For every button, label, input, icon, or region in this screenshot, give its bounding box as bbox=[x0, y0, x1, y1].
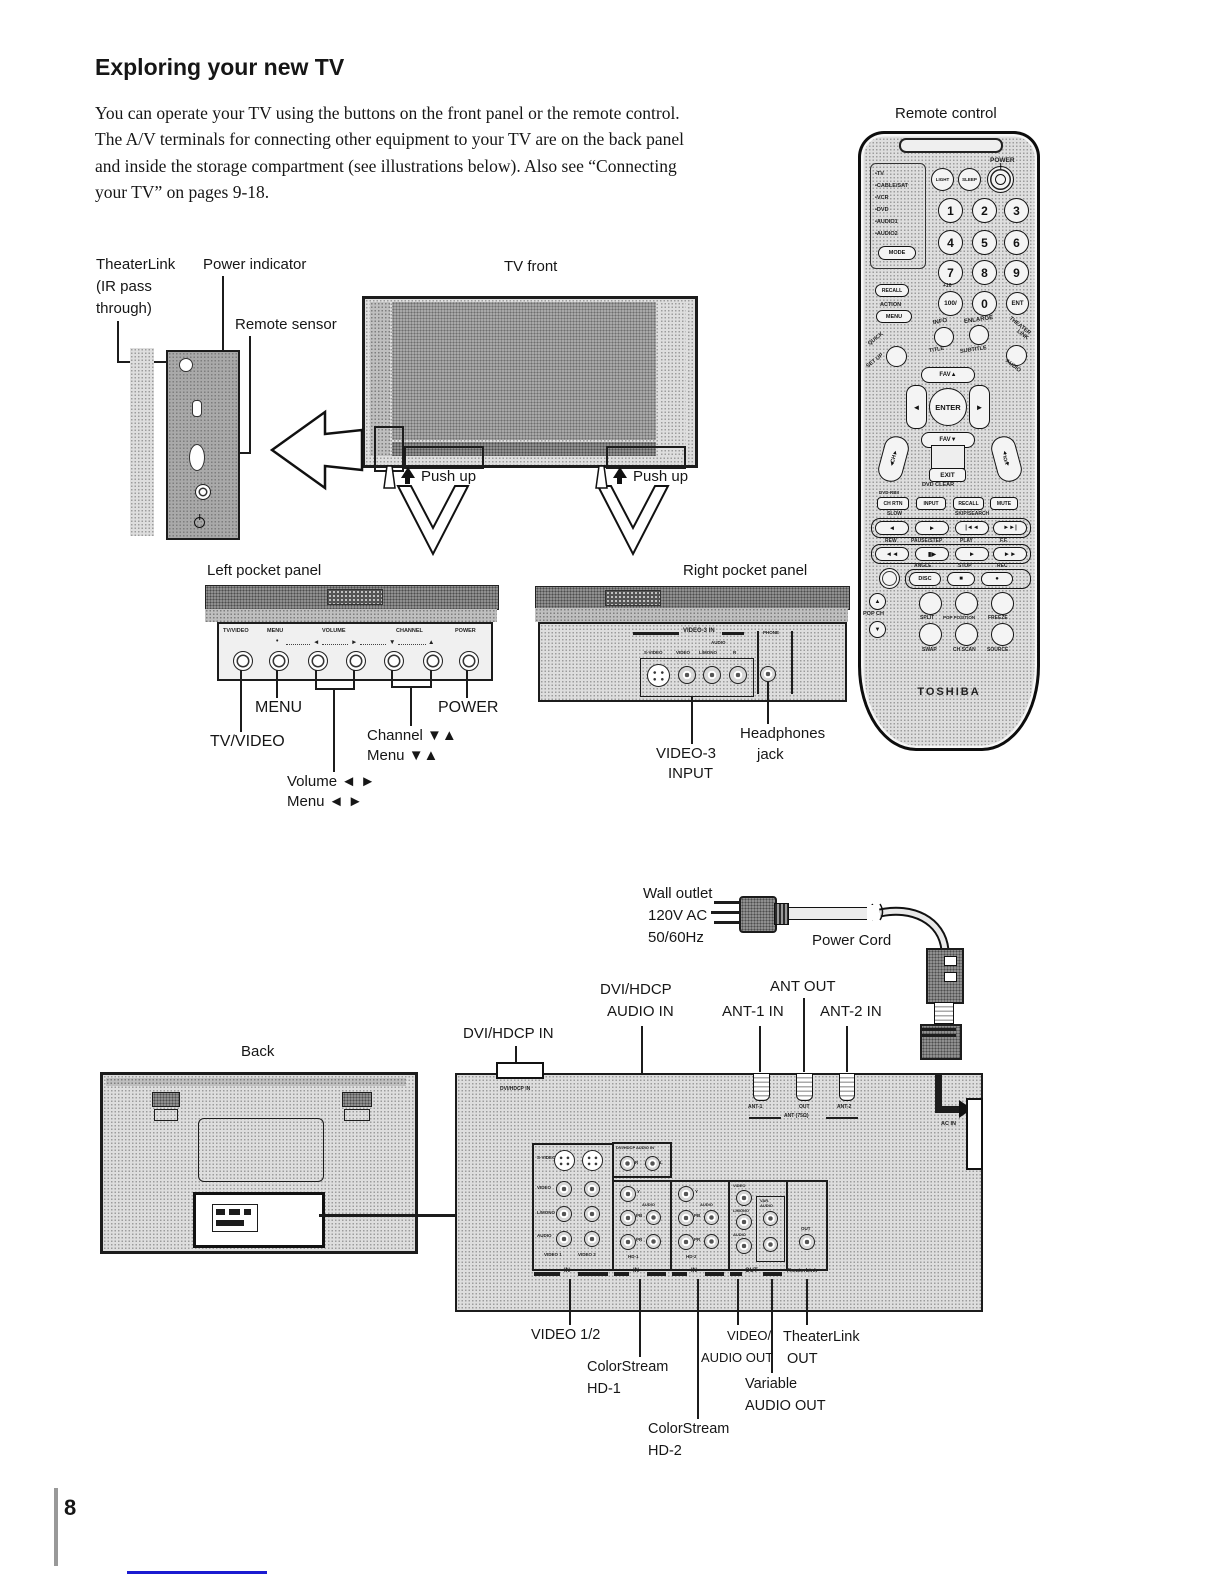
video3-input-callout-2: INPUT bbox=[668, 766, 713, 783]
push-up-arrow-stem bbox=[405, 477, 410, 484]
menu-callout: MENU bbox=[255, 699, 302, 717]
hd1-tag: HD-1 bbox=[628, 1254, 639, 1259]
enter-button: ENTER bbox=[929, 388, 967, 426]
action-label: ACTION bbox=[880, 302, 901, 308]
phone-label: PHONE bbox=[763, 630, 779, 635]
var-audio-r-jack bbox=[763, 1237, 778, 1252]
cord-break-gap bbox=[867, 905, 877, 920]
jack-label-l-mono: L/MONO bbox=[699, 650, 717, 655]
y-label: Y bbox=[637, 1189, 640, 1194]
callout-line bbox=[391, 670, 393, 686]
recall-transport-button: RECALL bbox=[953, 497, 984, 510]
callout-line bbox=[737, 1279, 739, 1325]
digit-4-button: 4 bbox=[938, 230, 963, 255]
input-button: INPUT bbox=[916, 497, 946, 510]
callout-line bbox=[846, 1026, 848, 1072]
s-video-jack bbox=[554, 1150, 575, 1171]
video12-group: S-VIDEO VIDEO L/MONO AUDIO VIDEO 1 VIDEO… bbox=[532, 1143, 614, 1271]
tv-left-cover-outline bbox=[404, 446, 484, 469]
recall-button: RECALL bbox=[875, 284, 909, 297]
audio-r-jack bbox=[584, 1231, 600, 1247]
split-label: SPLIT bbox=[920, 615, 934, 621]
enlarge-label: ENLARGE bbox=[964, 315, 994, 325]
callout-line bbox=[315, 670, 317, 688]
down-chevron-icon bbox=[598, 486, 668, 554]
dvi-audio-in-box: DVI/HDCP AUDIO IN R L bbox=[612, 1142, 672, 1178]
ant2-connector bbox=[839, 1073, 855, 1101]
digit-0-button: 0 bbox=[972, 291, 997, 316]
r-label: R bbox=[635, 1160, 638, 1165]
back-panel-vent bbox=[152, 1092, 180, 1107]
video-jack bbox=[584, 1181, 600, 1197]
pop-position-label: POP POSITION bbox=[943, 615, 975, 620]
pop-ch-label: POP CH bbox=[863, 611, 884, 617]
inset-link-line bbox=[319, 1214, 457, 1217]
callout-line bbox=[249, 336, 251, 454]
mode-item-audio2: •AUDIO2 bbox=[875, 231, 898, 237]
volume-left-glyph: ◄ bbox=[313, 639, 319, 646]
headphone-jack bbox=[760, 666, 776, 682]
mute-button: MUTE bbox=[990, 497, 1018, 510]
plug-block-stripe bbox=[922, 1028, 956, 1031]
digit-1-button: 1 bbox=[938, 198, 963, 223]
video3-group-label: VIDEO-3 IN bbox=[683, 628, 715, 634]
right-pocket-display bbox=[605, 590, 661, 606]
var-audio-l-jack bbox=[763, 1211, 778, 1226]
plug-body bbox=[739, 896, 777, 933]
tl-callout-2: OUT bbox=[787, 1351, 818, 1367]
callout-line bbox=[430, 670, 432, 686]
plug-collar bbox=[774, 903, 789, 925]
audio-out-r-jack bbox=[736, 1238, 752, 1254]
ant1-in-label: ANT-1 IN bbox=[722, 1004, 784, 1021]
menu-button bbox=[269, 651, 289, 671]
inset-connector-glyph bbox=[244, 1209, 251, 1215]
callout-line bbox=[353, 670, 355, 688]
slow-back-button: ◄ bbox=[875, 521, 909, 535]
digit-3-button: 3 bbox=[1004, 198, 1029, 223]
source-button bbox=[991, 623, 1014, 646]
audio-out-l-jack bbox=[736, 1214, 752, 1230]
quick-setup-button bbox=[886, 346, 907, 367]
panel-label-volume: VOLUME bbox=[322, 628, 346, 634]
ant2-in-label: ANT-2 IN bbox=[820, 1004, 882, 1021]
panel-label-menu: MENU bbox=[267, 628, 283, 634]
video3-bracket-bar bbox=[722, 632, 744, 635]
push-up-label-right: Push up bbox=[633, 469, 688, 486]
skip-search-label: SKIP/SEARCH bbox=[955, 511, 989, 517]
digit-2-button: 2 bbox=[972, 198, 997, 223]
ant-bracket-label: ANT (75Ω) bbox=[784, 1113, 809, 1119]
tl-out-label: OUT bbox=[801, 1226, 811, 1231]
bracket-in-1: IN bbox=[564, 1268, 570, 1274]
g1-col-video1: VIDEO 1 bbox=[544, 1252, 562, 1257]
title-label: TITLE bbox=[929, 346, 945, 355]
nav-left-button: ◄ bbox=[906, 385, 927, 429]
jack-label-s-video: S-VIDEO bbox=[644, 650, 663, 655]
bracket-in-2: IN bbox=[633, 1268, 639, 1274]
power-button-label: POWER bbox=[990, 157, 1015, 164]
callout-line bbox=[691, 696, 693, 744]
mode-item-dvd: •DVD bbox=[875, 207, 889, 213]
tl-callout-1: TheaterLink bbox=[783, 1329, 860, 1345]
down-chevron-icon bbox=[398, 486, 468, 554]
callout-line bbox=[759, 1026, 761, 1072]
dvi-audio-r-jack bbox=[620, 1156, 635, 1171]
mode-item-audio1: •AUDIO1 bbox=[875, 219, 898, 225]
panel-dotted-line bbox=[286, 644, 310, 645]
audio-l-jack bbox=[556, 1206, 572, 1222]
video-jack bbox=[556, 1181, 572, 1197]
bracket-bar bbox=[647, 1272, 666, 1276]
right-pocket-mid-band bbox=[535, 608, 848, 622]
panel-label-tv-video: TV/VIDEO bbox=[223, 628, 249, 634]
ac-in-label: AC IN bbox=[941, 1121, 956, 1127]
bracket-bar bbox=[705, 1272, 724, 1276]
left-pocket-display bbox=[327, 589, 383, 605]
connector-slot bbox=[944, 972, 957, 982]
tv-side-pocket-outline bbox=[374, 426, 404, 472]
exit-button-frame bbox=[931, 445, 965, 469]
callout-line bbox=[466, 670, 468, 698]
page-title: Exploring your new TV bbox=[95, 55, 344, 81]
menu-dot-glyph: • bbox=[276, 638, 278, 645]
bracket-in-3: IN bbox=[691, 1268, 697, 1274]
plug-prong bbox=[714, 921, 739, 924]
rew-button: ◄◄ bbox=[875, 547, 909, 561]
volume-right-button bbox=[346, 651, 366, 671]
ant1-connector bbox=[753, 1073, 770, 1101]
tv-right-speaker bbox=[660, 302, 686, 456]
dvi-port bbox=[496, 1062, 544, 1079]
plug-block-stripe bbox=[922, 1034, 956, 1037]
subtitle-label: SUBTITLE bbox=[960, 345, 987, 355]
power-symbol-icon bbox=[995, 174, 1006, 185]
ac-in-socket bbox=[966, 1098, 983, 1170]
volume-callout: Volume ◄ ► bbox=[287, 774, 375, 791]
theaterlink-out-jack bbox=[799, 1234, 815, 1250]
ff-button: ►► bbox=[993, 547, 1027, 561]
video-out-jack bbox=[736, 1190, 752, 1206]
skip-fwd-button: ►►| bbox=[993, 521, 1027, 535]
slow-fwd-button: ► bbox=[915, 521, 949, 535]
theaterlink-group: OUT bbox=[786, 1180, 828, 1271]
tv-screen bbox=[392, 302, 656, 440]
bracket-bar bbox=[730, 1272, 742, 1276]
phone-bracket bbox=[791, 631, 793, 694]
callout-line bbox=[515, 1046, 517, 1062]
right-pocket-title: Right pocket panel bbox=[683, 563, 807, 580]
digit-6-button: 6 bbox=[1004, 230, 1029, 255]
volume-rocker: ▲VOL▼ bbox=[988, 434, 1024, 485]
audio-l-jack bbox=[704, 1210, 719, 1225]
audio-r-jack bbox=[556, 1231, 572, 1247]
var-audio-subgroup: VAR. AUDIO bbox=[756, 1196, 785, 1262]
cs1-callout-2: HD-1 bbox=[587, 1381, 621, 1397]
pr-jack bbox=[620, 1234, 636, 1250]
ant-out-label: ANT OUT bbox=[770, 979, 836, 996]
video-jack bbox=[678, 666, 696, 684]
remote-power-button bbox=[987, 166, 1014, 193]
g1-row-s-video: S-VIDEO bbox=[537, 1155, 556, 1160]
channel-menu-callout: Menu ▼▲ bbox=[367, 748, 438, 765]
audio-bracket-label: AUDIO bbox=[711, 640, 726, 645]
out-audio-label: AUDIO bbox=[733, 1232, 746, 1237]
channel-down-button bbox=[384, 651, 404, 671]
ch-scan-label: CH SCAN bbox=[953, 647, 976, 653]
audio-l-jack bbox=[584, 1206, 600, 1222]
swap-button bbox=[919, 623, 942, 646]
power-cord-segment bbox=[788, 907, 868, 920]
audio-l-jack bbox=[646, 1210, 661, 1225]
y-jack bbox=[678, 1186, 694, 1202]
diagram-arrows-layer bbox=[0, 0, 1224, 1584]
audio-small-label: AUDIO bbox=[642, 1202, 655, 1207]
connector-slot bbox=[944, 956, 957, 966]
ant-out-small-label: OUT bbox=[799, 1104, 810, 1110]
channel-up-glyph: ▲ bbox=[428, 639, 434, 646]
g1-row-l-mono: L/MONO bbox=[537, 1210, 555, 1215]
wall-outlet-label-1: Wall outlet bbox=[643, 886, 712, 903]
light-button: LIGHT bbox=[931, 168, 954, 191]
back-panel-vent bbox=[342, 1092, 372, 1107]
cord-connector-neck bbox=[934, 1002, 954, 1024]
tv-side-strip bbox=[130, 348, 154, 536]
volume-left-button bbox=[308, 651, 328, 671]
mode-item-vcr: •VCR bbox=[875, 195, 889, 201]
tv-side-panel bbox=[166, 350, 240, 540]
bracket-bar bbox=[578, 1272, 608, 1276]
bracket-bar bbox=[614, 1272, 629, 1276]
colorstream-hd2-group: Y AUDIO PB PR HD-2 bbox=[670, 1180, 730, 1271]
mode-item-tv: •TV bbox=[875, 171, 884, 177]
pb-label: PB bbox=[694, 1213, 700, 1218]
swap-label: SWAP bbox=[922, 647, 937, 653]
callout-line bbox=[117, 321, 119, 363]
side-power-button bbox=[195, 484, 211, 500]
freeze-label: FREEZE bbox=[988, 615, 1008, 621]
g1-col-video2: VIDEO 2 bbox=[578, 1252, 596, 1257]
digit-5-button: 5 bbox=[972, 230, 997, 255]
split-button bbox=[919, 592, 942, 615]
video12-callout: VIDEO 1/2 bbox=[531, 1327, 600, 1343]
audio-r-jack bbox=[704, 1234, 719, 1249]
tv-video-button bbox=[233, 651, 253, 671]
channel-up-button bbox=[423, 651, 443, 671]
y-jack bbox=[620, 1186, 636, 1202]
channel-callout: Channel ▼▲ bbox=[367, 728, 457, 745]
dvi-audio-label-2: AUDIO IN bbox=[607, 1004, 674, 1021]
left-pocket-mid-band bbox=[205, 609, 497, 622]
audio-r-jack bbox=[646, 1234, 661, 1249]
dvd-rbii-label: DVD-RBII bbox=[879, 490, 899, 495]
power-indicator bbox=[192, 400, 202, 417]
disc-button: DISC bbox=[909, 572, 941, 586]
back-label: Back bbox=[241, 1044, 274, 1061]
pop-position-button bbox=[955, 592, 978, 615]
headphones-callout-2: jack bbox=[757, 747, 784, 764]
cs2-callout-2: HD-2 bbox=[648, 1443, 682, 1459]
sleep-button: SLEEP bbox=[958, 168, 981, 191]
var-label-2: AUDIO bbox=[760, 1203, 773, 1208]
panel-label-power: POWER bbox=[455, 628, 476, 634]
back-panel-center-plate bbox=[198, 1118, 324, 1182]
pb-label: PB bbox=[636, 1213, 642, 1218]
inset-connector-glyph bbox=[216, 1209, 225, 1215]
dvi-port-label: DVI/HDCP IN bbox=[500, 1086, 530, 1092]
wall-outlet-label-3: 50/60Hz bbox=[648, 930, 704, 947]
remote-body: •TV •CABLE/SAT •VCR •DVD •AUDIO1 •AUDIO2… bbox=[858, 131, 1040, 751]
info-title-button bbox=[934, 327, 954, 347]
phone-bracket bbox=[757, 631, 759, 694]
theaterlink-label-3: through) bbox=[96, 301, 152, 318]
out-video-label: VIDEO bbox=[733, 1183, 745, 1188]
ant-bracket-bar bbox=[826, 1117, 858, 1119]
audio-r-jack bbox=[729, 666, 747, 684]
mode-list-box: •TV •CABLE/SAT •VCR •DVD •AUDIO1 •AUDIO2… bbox=[870, 163, 926, 269]
bracket-bar bbox=[763, 1272, 782, 1276]
callout-line bbox=[333, 688, 335, 772]
digit-9-button: 9 bbox=[1004, 260, 1029, 285]
dvi-audio-l-jack bbox=[645, 1156, 660, 1171]
callout-line bbox=[639, 1279, 641, 1357]
callout-line bbox=[410, 686, 412, 726]
av-out-group: VIDEO L/MONO AUDIO VAR. AUDIO bbox=[728, 1180, 788, 1271]
footer-link-line[interactable] bbox=[127, 1571, 267, 1574]
freeze-button bbox=[991, 592, 1014, 615]
var-callout-1: Variable bbox=[745, 1376, 797, 1392]
callout-line bbox=[767, 682, 769, 724]
y-label: Y bbox=[695, 1189, 698, 1194]
callout-line bbox=[276, 670, 278, 698]
out-l-mono-label: L/MONO bbox=[733, 1208, 749, 1213]
volume-rocker-label: VOL bbox=[1002, 453, 1010, 464]
remote-sensor bbox=[189, 444, 205, 471]
bracket-bar bbox=[534, 1272, 560, 1276]
remote-brand: TOSHIBA bbox=[861, 686, 1037, 698]
bracket-bar bbox=[672, 1272, 687, 1276]
ent-button: ENT bbox=[1006, 292, 1029, 315]
setup-label: SET UP bbox=[865, 353, 884, 370]
intro-paragraph: You can operate your TV using the button… bbox=[95, 100, 695, 205]
ch-rtn-button: CH RTN bbox=[877, 497, 909, 510]
var-callout-2: AUDIO OUT bbox=[745, 1398, 826, 1414]
inset-connector-glyph bbox=[229, 1209, 240, 1215]
power-callout: POWER bbox=[438, 699, 498, 717]
plug-prong bbox=[714, 901, 739, 904]
digit-8-button: 8 bbox=[972, 260, 997, 285]
colorstream-hd1-group: Y AUDIO PB PR HD-1 bbox=[612, 1180, 672, 1271]
remote-control-title: Remote control bbox=[895, 106, 997, 123]
action-menu-button: MENU bbox=[876, 310, 912, 323]
callout-line bbox=[569, 1279, 571, 1325]
ac-in-arrow bbox=[935, 1106, 959, 1113]
big-left-arrow-icon bbox=[272, 412, 362, 488]
audio-l-jack bbox=[703, 666, 721, 684]
dvd-clear-label: DVD CLEAR bbox=[922, 482, 954, 488]
ant2-small-label: ANT-2 bbox=[837, 1104, 851, 1110]
cover-tab-icon bbox=[596, 466, 607, 488]
theaterlink-emitter bbox=[179, 358, 193, 372]
fav-up-button: FAV▲ bbox=[921, 367, 975, 383]
slow-label: SLOW bbox=[887, 511, 902, 517]
ant-bracket-bar bbox=[749, 1117, 781, 1119]
pb-jack bbox=[620, 1210, 636, 1226]
power-button bbox=[459, 651, 479, 671]
pop-ch-up-button: ▲ bbox=[869, 593, 886, 610]
panel-dotted-line bbox=[322, 644, 348, 645]
tv-video-callout: TV/VIDEO bbox=[210, 733, 285, 751]
ant1-small-label: ANT-1 bbox=[748, 1104, 762, 1110]
exit-button: EXIT bbox=[929, 468, 966, 482]
stop-button: ■ bbox=[947, 572, 975, 586]
callout-line bbox=[315, 688, 355, 690]
theaterlink-label-1: TheaterLink bbox=[96, 257, 175, 274]
page-number: 8 bbox=[64, 1496, 76, 1521]
back-panel-vent bbox=[154, 1109, 178, 1121]
audio-small-label: AUDIO bbox=[700, 1202, 713, 1207]
callout-line bbox=[806, 1279, 808, 1325]
nav-right-button: ► bbox=[969, 385, 990, 429]
pr-label: PR bbox=[694, 1237, 700, 1242]
pr-label: PR bbox=[636, 1237, 642, 1242]
dvi-audio-label-1: DVI/HDCP bbox=[600, 982, 672, 999]
source-label: SOURCE bbox=[987, 647, 1008, 653]
jog-button bbox=[879, 568, 900, 589]
volume-menu-callout: Menu ◄ ► bbox=[287, 794, 363, 811]
callout-line bbox=[240, 670, 242, 732]
panel-label-channel: CHANNEL bbox=[396, 628, 423, 634]
power-cord-label: Power Cord bbox=[812, 933, 891, 950]
ant-out-connector bbox=[796, 1073, 813, 1101]
channel-rocker: ▲CH▼ bbox=[875, 434, 911, 485]
wall-outlet-label-2: 120V AC bbox=[648, 908, 707, 925]
pb-jack bbox=[678, 1210, 694, 1226]
vao-callout-1: VIDEO/ bbox=[727, 1329, 771, 1344]
callout-line bbox=[697, 1279, 699, 1419]
video3-input-callout-1: VIDEO-3 bbox=[656, 746, 716, 763]
info-label: INFO bbox=[933, 318, 948, 326]
back-panel-vent bbox=[344, 1109, 370, 1121]
inset-connector-glyph bbox=[216, 1220, 244, 1226]
panel-dotted-line bbox=[398, 644, 426, 645]
push-up-label-left: Push up bbox=[421, 469, 476, 486]
s-video-jack bbox=[582, 1150, 603, 1171]
power-symbol-icon bbox=[194, 517, 205, 528]
mode-item-cable-sat: •CABLE/SAT bbox=[875, 183, 908, 189]
hundred-button: 100/ bbox=[938, 291, 963, 316]
right-pocket-top-band bbox=[535, 586, 850, 610]
back-panel-top-band bbox=[106, 1078, 406, 1086]
hd2-tag: HD-2 bbox=[686, 1254, 697, 1259]
pr-jack bbox=[678, 1234, 694, 1250]
footer-sidebar-rule bbox=[54, 1488, 58, 1566]
power-indicator-label: Power indicator bbox=[203, 257, 306, 274]
remote-top-notch bbox=[899, 138, 1003, 153]
vao-callout-2: AUDIO OUT bbox=[701, 1351, 773, 1366]
cs2-callout-1: ColorStream bbox=[648, 1421, 729, 1437]
jack-label-video: VIDEO bbox=[676, 650, 690, 655]
mode-button: MODE bbox=[878, 246, 916, 260]
bracket-theaterlink: TheaterLink bbox=[786, 1268, 817, 1274]
pause-step-button: ▮▶ bbox=[915, 547, 949, 561]
s-video-jack bbox=[647, 664, 670, 687]
bracket-out: OUT bbox=[745, 1268, 758, 1274]
left-pocket-title: Left pocket panel bbox=[207, 563, 321, 580]
theaterlink-label-2: (IR pass bbox=[96, 279, 152, 296]
dvi-in-label: DVI/HDCP IN bbox=[463, 1026, 554, 1043]
headphones-callout-1: Headphones bbox=[740, 726, 825, 743]
